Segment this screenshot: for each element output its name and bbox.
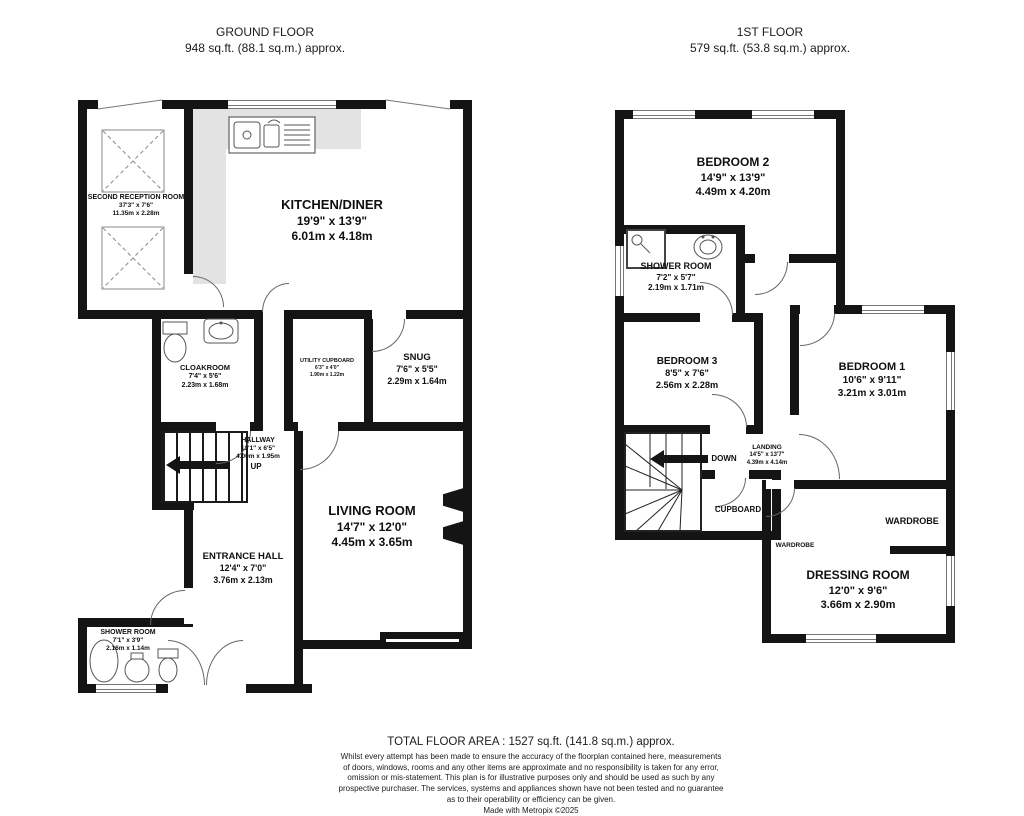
down-label: DOWN — [711, 454, 736, 463]
wall-segment — [463, 100, 472, 648]
room-label-dressing-room: DRESSING ROOM 12'0" x 9'6" 3.66m x 2.90m — [806, 568, 909, 612]
wall-segment — [254, 310, 263, 431]
room-dims-imperial: 10'6" x 9'11" — [838, 374, 907, 387]
room-label-cloakroom: CLOAKROOM 7'4" x 5'6" 2.23m x 1.68m — [180, 363, 230, 391]
room-dims-metric: 4.39m x 4.14m — [747, 460, 787, 468]
room-dims-imperial: 37'3" x 7'6" — [88, 202, 184, 210]
room-label-bedroom-2: BEDROOM 2 14'9" x 13'9" 4.49m x 4.20m — [696, 155, 771, 199]
wall-segment — [284, 310, 293, 431]
room-dims-imperial: 7'4" x 5'6" — [180, 373, 230, 382]
room-name: KITCHEN/DINER — [281, 197, 383, 214]
wall-segment — [615, 531, 781, 540]
room-name: LIVING ROOM — [328, 503, 415, 520]
door-opening — [168, 684, 246, 693]
room-name: SECOND RECEPTION ROOM — [88, 193, 184, 202]
room-dims-metric: 4.00m x 1.95m — [236, 453, 280, 461]
basin-icon — [122, 652, 152, 684]
window — [806, 634, 876, 643]
room-dims-imperial: 19'9" x 13'9" — [281, 214, 383, 230]
disclaimer-line: Whilst every attempt has been made to en… — [339, 752, 724, 763]
room-label-utility-cupboard: UTILITY CUPBOARD 6'3" x 4'0" 1.90m x 1.2… — [300, 358, 354, 378]
door-arc — [766, 488, 795, 517]
disclaimer-line: prospective purchaser. The services, sys… — [339, 784, 724, 795]
room-dims-imperial: 6'3" x 4'0" — [300, 365, 354, 372]
rooflight-icon — [101, 129, 165, 193]
room-dims-imperial: 13'1" x 6'5" — [236, 445, 280, 453]
wall-segment — [736, 254, 845, 263]
room-dims-metric: 2.29m x 1.64m — [387, 376, 446, 387]
basin-icon — [203, 318, 239, 344]
door-opening — [184, 274, 193, 310]
room-dims-metric: 2.16m x 1.14m — [100, 645, 155, 653]
wall-segment — [78, 310, 161, 319]
wardrobe-label-right: WARDROBE — [885, 516, 939, 526]
door-arc — [300, 431, 339, 470]
room-name: BEDROOM 1 — [838, 360, 907, 374]
wardrobe-label-left: WARDROBE — [776, 542, 815, 549]
room-name: UTILITY CUPBOARD — [300, 358, 354, 365]
room-dims-imperial: 12'0" x 9'6" — [806, 584, 909, 598]
down-arrow-icon — [650, 450, 664, 468]
toilet-icon — [160, 320, 190, 364]
ground-floor-title: GROUND FLOOR 948 sq.ft. (88.1 sq.m.) app… — [185, 24, 345, 56]
room-dims-metric: 3.21m x 3.01m — [838, 387, 907, 400]
door-arc — [715, 478, 746, 507]
door-arc — [206, 640, 243, 685]
door-arc — [755, 262, 788, 295]
room-dims-imperial: 7'6" x 5'5" — [387, 364, 446, 375]
door-arc — [262, 283, 289, 312]
window — [862, 305, 924, 314]
room-dims-metric: 2.23m x 1.68m — [180, 382, 230, 391]
room-label-snug: SNUG 7'6" x 5'5" 2.29m x 1.64m — [387, 352, 446, 387]
roof-opening-line — [98, 100, 162, 109]
room-name: SHOWER ROOM — [100, 628, 155, 637]
room-dims-imperial: 7'2" x 5'7" — [641, 273, 712, 284]
down-arrow-icon — [664, 455, 708, 463]
room-label-landing: LANDING 14'5" x 13'7" 4.39m x 4.14m — [747, 444, 787, 468]
room-name: HALLWAY — [236, 436, 280, 445]
door-arc — [168, 640, 205, 685]
wall-segment — [615, 313, 763, 322]
window — [946, 556, 955, 606]
up-arrow-icon — [166, 456, 180, 474]
rooflight-icon — [101, 226, 165, 290]
wall-segment — [790, 305, 799, 415]
door-arc — [712, 394, 747, 427]
room-dims-imperial: 8'5" x 7'6" — [656, 368, 718, 380]
wall-segment — [890, 546, 955, 554]
window — [752, 110, 814, 119]
window — [633, 110, 695, 119]
credit-line: Made with Metropix ©2025 — [339, 806, 724, 816]
room-name: DRESSING ROOM — [806, 568, 909, 584]
room-label-entrance-hall: ENTRANCE HALL 12'4" x 7'0" 3.76m x 2.13m — [203, 551, 284, 586]
room-label-hallway: HALLWAY 13'1" x 6'5" 4.00m x 1.95m — [236, 436, 280, 462]
room-label-living-room: LIVING ROOM 14'7" x 12'0" 4.45m x 3.65m — [328, 503, 415, 551]
window — [228, 100, 336, 109]
room-name: CLOAKROOM — [180, 363, 230, 373]
first-floor-area-text: 579 sq.ft. (53.8 sq.m.) approx. — [690, 40, 850, 56]
room-dims-metric: 2.56m x 2.28m — [656, 380, 718, 392]
room-dims-metric: 4.45m x 3.65m — [328, 535, 415, 551]
room-dims-metric: 6.01m x 4.18m — [281, 229, 383, 245]
room-dims-metric: 1.90m x 1.22m — [300, 372, 354, 379]
door-arc — [150, 590, 185, 625]
room-name: SHOWER ROOM — [641, 261, 712, 273]
door-opening — [298, 422, 338, 431]
room-dims-imperial: 14'5" x 13'7" — [747, 452, 787, 460]
door-opening — [184, 588, 193, 624]
wall-segment — [736, 225, 745, 322]
room-name: LANDING — [747, 444, 787, 452]
room-label-bedroom-1: BEDROOM 1 10'6" x 9'11" 3.21m x 3.01m — [838, 360, 907, 401]
window — [96, 684, 156, 693]
room-label-shower-room-ground: SHOWER ROOM 7'1" x 3'9" 2.16m x 1.14m — [100, 628, 155, 654]
floorplan-page: { "colors": {"wall": "#141414", "counter… — [0, 0, 1024, 801]
room-dims-imperial: 14'7" x 12'0" — [328, 520, 415, 536]
disclaimer-line: of doors, windows, rooms and any other i… — [339, 763, 724, 774]
disclaimer-line: as to their operability or efficiency ca… — [339, 795, 724, 806]
door-arc — [372, 319, 405, 352]
room-dims-metric: 4.49m x 4.20m — [696, 185, 771, 199]
window — [946, 352, 955, 410]
window — [615, 246, 624, 296]
first-floor-title-text: 1ST FLOOR — [690, 24, 850, 40]
room-dims-metric: 3.76m x 2.13m — [203, 575, 284, 586]
disclaimer-line: omission or mis-statement. This plan is … — [339, 773, 724, 784]
basin-icon — [692, 233, 724, 261]
room-dims-imperial: 7'1" x 3'9" — [100, 637, 155, 645]
up-label: UP — [250, 462, 261, 471]
kitchen-counter — [193, 109, 226, 284]
roof-opening-line — [386, 100, 450, 109]
door-opening — [372, 310, 406, 319]
room-dims-imperial: 12'4" x 7'0" — [203, 563, 284, 574]
door-arc — [799, 434, 840, 479]
kitchen-sink-icon — [228, 116, 316, 154]
footer: TOTAL FLOOR AREA : 1527 sq.ft. (141.8 sq… — [339, 736, 724, 816]
door-arc — [800, 313, 835, 346]
room-dims-metric: 11.35m x 2.28m — [88, 210, 184, 218]
room-name: BEDROOM 2 — [696, 155, 771, 171]
room-label-kitchen-diner: KITCHEN/DINER 19'9" x 13'9" 6.01m x 4.18… — [281, 197, 383, 245]
first-floor-title: 1ST FLOOR 579 sq.ft. (53.8 sq.m.) approx… — [690, 24, 850, 56]
room-dims-metric: 3.66m x 2.90m — [806, 598, 909, 612]
ground-floor-area-text: 948 sq.ft. (88.1 sq.m.) approx. — [185, 40, 345, 56]
room-dims-metric: 2.19m x 1.71m — [641, 283, 712, 294]
wall-segment — [78, 100, 87, 318]
room-label-shower-room-first: SHOWER ROOM 7'2" x 5'7" 2.19m x 1.71m — [641, 261, 712, 294]
room-name: ENTRANCE HALL — [203, 551, 284, 563]
cupboard-label: CUPBOARD — [715, 505, 761, 514]
room-label-bedroom-3: BEDROOM 3 8'5" x 7'6" 2.56m x 2.28m — [656, 355, 718, 392]
room-label-second-reception: SECOND RECEPTION ROOM 37'3" x 7'6" 11.35… — [88, 193, 184, 219]
room-name: BEDROOM 3 — [656, 355, 718, 368]
total-floor-area: TOTAL FLOOR AREA : 1527 sq.ft. (141.8 sq… — [339, 736, 724, 748]
wall-segment — [836, 110, 845, 314]
wall-segment — [152, 310, 472, 319]
bay-window-glass — [386, 639, 459, 642]
door-opening — [263, 422, 284, 431]
chimney-breast — [443, 487, 467, 513]
door-opening — [216, 422, 250, 431]
room-name: SNUG — [387, 352, 446, 364]
room-dims-imperial: 14'9" x 13'9" — [696, 171, 771, 185]
stairs-down — [624, 432, 702, 532]
ground-floor-title-text: GROUND FLOOR — [185, 24, 345, 40]
chimney-breast — [443, 520, 467, 546]
wall-segment — [615, 110, 624, 540]
wall-segment — [754, 313, 763, 434]
wall-segment — [78, 618, 87, 693]
